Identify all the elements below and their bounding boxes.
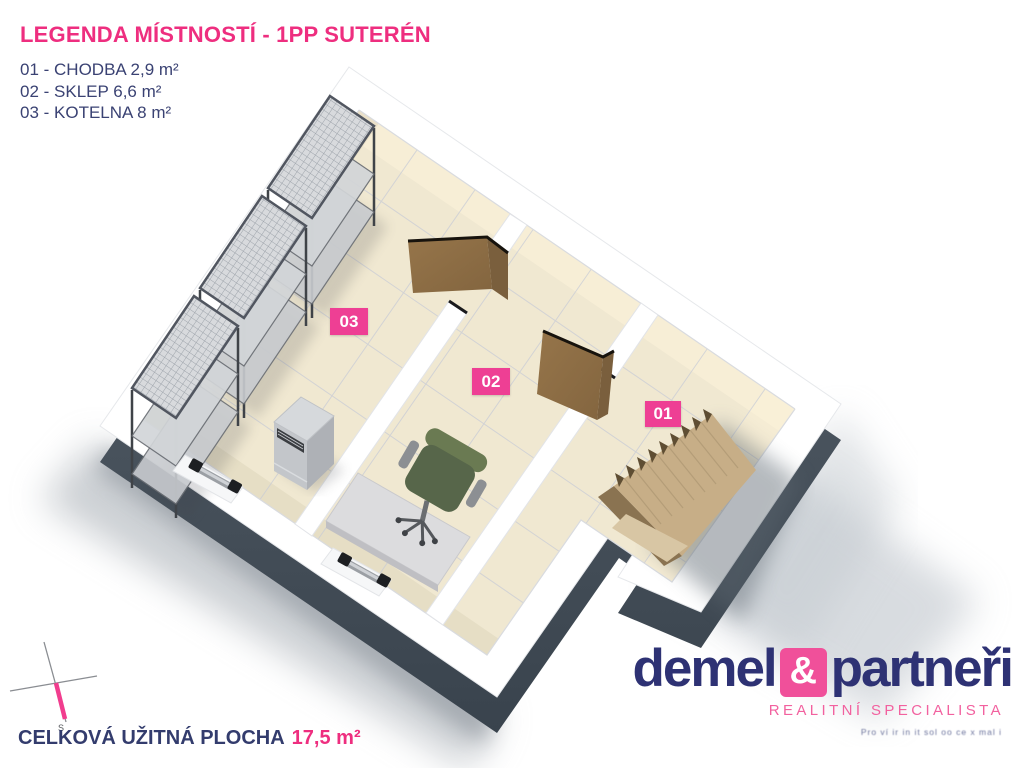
logo-subtitle: REALITNÍ SPECIALISTA — [596, 702, 1012, 719]
legend-item: 02 - SKLEP 6,6 m² — [20, 81, 431, 103]
room-badge-kotelna: 03 — [330, 308, 368, 335]
legend-item: 01 - CHODBA 2,9 m² — [20, 59, 431, 81]
brand-logo: demel & partneři REALITNÍ SPECIALISTA Pr… — [596, 640, 1012, 737]
legend-items: 01 - CHODBA 2,9 m² 02 - SKLEP 6,6 m² 03 … — [20, 59, 431, 124]
logo-ampersand-icon: & — [780, 648, 827, 697]
logo-word-first: demel — [632, 640, 775, 698]
total-area-value: 17,5 m² — [292, 727, 361, 749]
legend-item: 03 - KOTELNA 8 m² — [20, 102, 431, 124]
logo-word-second: partneři — [831, 640, 1012, 698]
compass: S — [10, 642, 97, 733]
logo-ampersand-glyph: & — [789, 650, 816, 693]
logo-wordmark: demel & partneři — [596, 640, 1012, 698]
room-badge-chodba: 01 — [645, 401, 681, 427]
total-area-label: CELKOVÁ UŽITNÁ PLOCHA — [18, 727, 285, 749]
room-badge-sklep: 02 — [472, 368, 510, 395]
logo-tagline-illegible: Pro ví ir in it sol oo ce x mal i — [596, 727, 1012, 737]
compass-south-needle — [56, 683, 65, 719]
total-area: CELKOVÁ UŽITNÁ PLOCHA17,5 m² — [18, 727, 361, 750]
legend: LEGENDA MÍSTNOSTÍ - 1PP SUTERÉN 01 - CHO… — [20, 22, 431, 124]
legend-title: LEGENDA MÍSTNOSTÍ - 1PP SUTERÉN — [20, 22, 431, 48]
